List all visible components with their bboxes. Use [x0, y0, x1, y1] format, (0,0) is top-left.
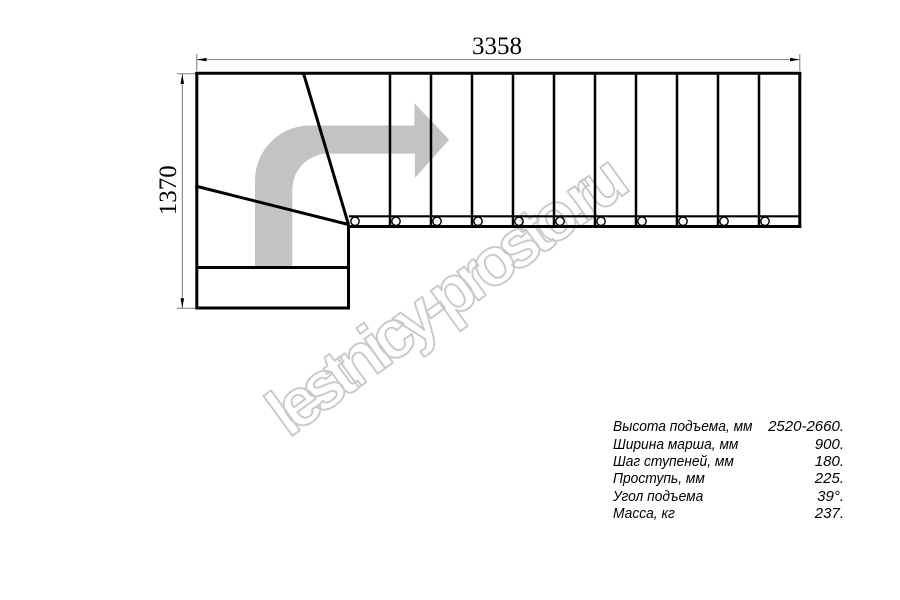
svg-text:1370: 1370 [155, 165, 182, 215]
svg-text:lestnicy-prosto.ru: lestnicy-prosto.ru [253, 141, 639, 451]
svg-text:3358: 3358 [472, 33, 522, 60]
